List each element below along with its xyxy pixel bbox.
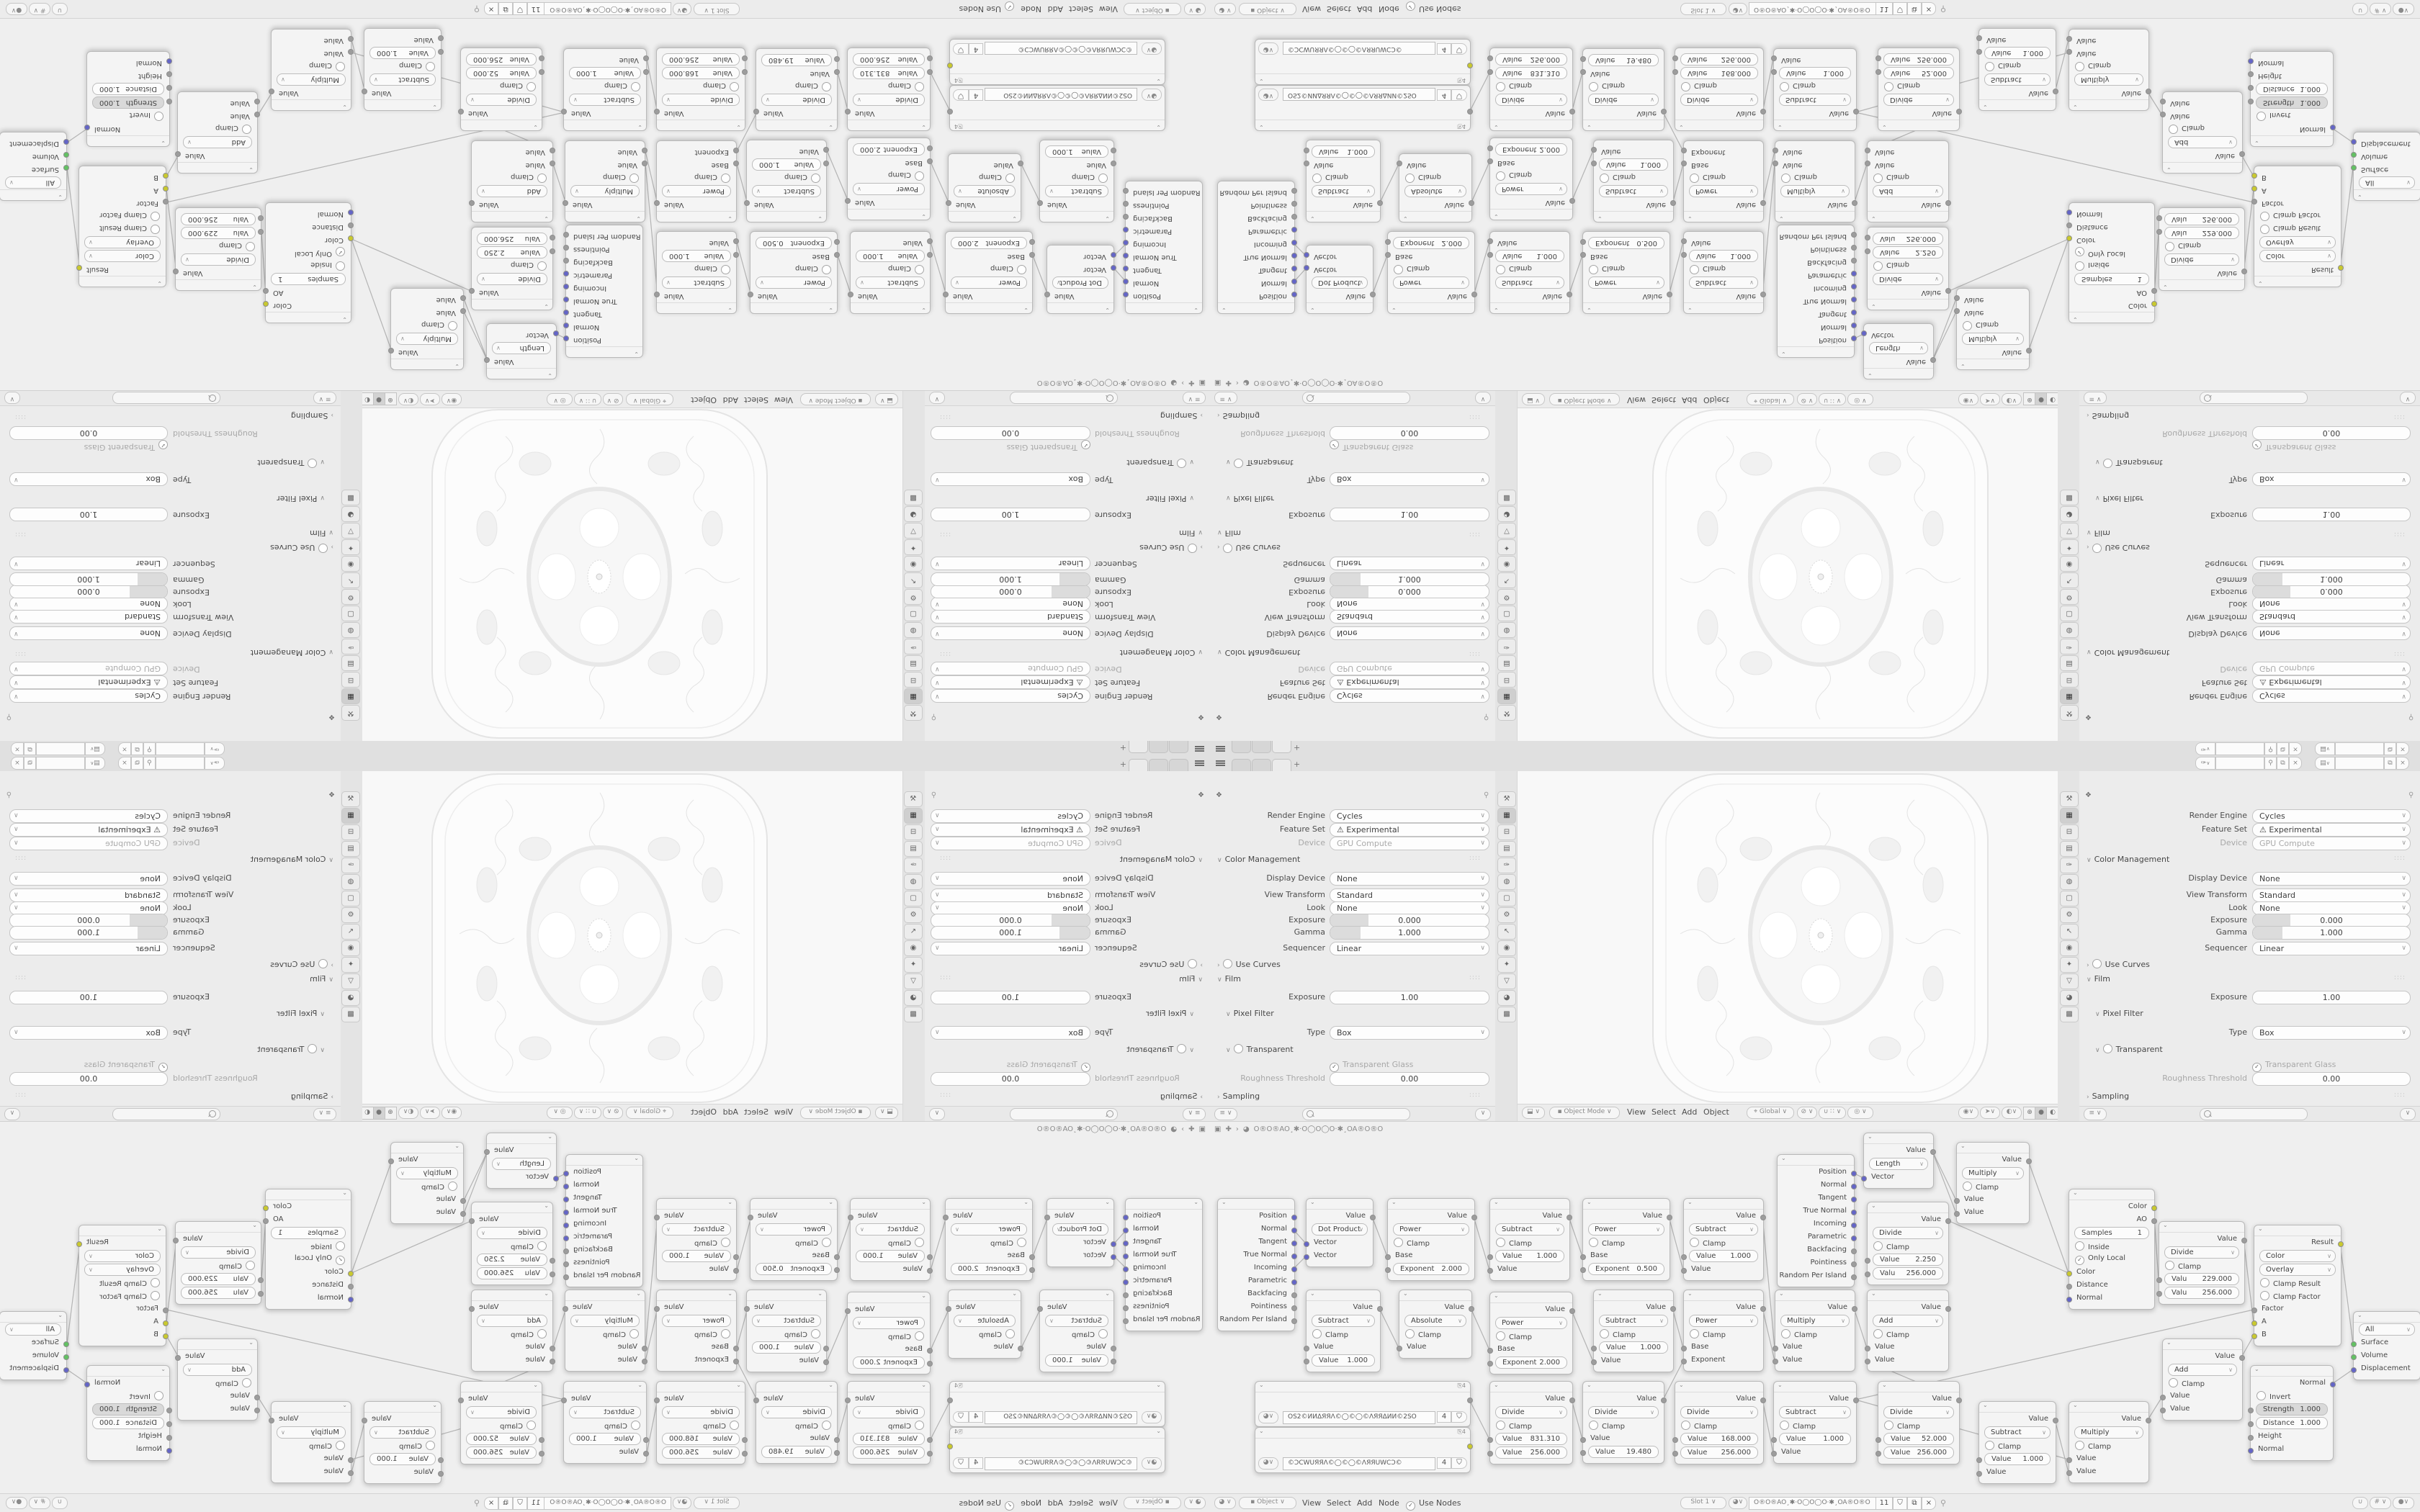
properties-tab-view-layer[interactable]: ▤ [2060, 655, 2079, 671]
socket-output[interactable] [1569, 109, 1575, 114]
node-checkbox[interactable]: Clamp [2165, 241, 2201, 251]
node-value-field[interactable]: Value19.480 [1588, 1446, 1659, 1458]
node-d10[interactable]: ⌄ValueDivide∨ClampValue2.250Valu256.000 [471, 1202, 553, 1285]
socket-input[interactable] [2248, 1448, 2254, 1454]
node-checkbox[interactable]: Clamp [990, 264, 1026, 274]
node-header[interactable]: ⌄ [1307, 211, 1380, 222]
node-checkbox[interactable]: Clamp [500, 81, 536, 91]
socket-input[interactable] [1385, 239, 1391, 245]
node-value-field[interactable]: Value168.000 [1680, 1433, 1758, 1445]
node-header[interactable]: ⌄ [2159, 279, 2244, 290]
node-s15[interactable]: ⌄ValueSubtract∨ClampValueValue1.000 [1306, 1290, 1381, 1372]
image-data-icon[interactable]: ▤∨ [2315, 742, 2335, 755]
shading-material-button[interactable]: ◐ [361, 392, 374, 405]
socket-input[interactable] [2066, 1271, 2072, 1277]
node-value-field[interactable]: Exponent0.500 [756, 237, 832, 249]
node-p17[interactable]: ⌄ValuePower∨ClampBaseExponent2.000 [1489, 1292, 1573, 1374]
node-header[interactable]: ⌄ [1594, 211, 1673, 222]
node-checkbox[interactable]: Clamp [703, 1421, 739, 1431]
menu-node[interactable]: Node [1021, 1498, 1041, 1508]
properties-tab-tool[interactable]: ⚒ [341, 791, 360, 807]
node-header[interactable]: ⌄ [364, 99, 441, 110]
node-header[interactable]: ⌄ [178, 1339, 257, 1350]
socket-output[interactable] [1569, 1308, 1575, 1314]
node-operation-dropdown[interactable]: All∨ [5, 176, 61, 189]
node-operation-dropdown[interactable]: Subtract∨ [856, 1223, 925, 1236]
node-value-field[interactable]: Valu256.000 [181, 1287, 256, 1299]
node-operation-dropdown[interactable]: Divide∨ [1588, 94, 1659, 106]
menu-view[interactable]: View [1627, 395, 1646, 405]
socket-output[interactable] [1853, 109, 1859, 114]
node-operation-dropdown[interactable]: Dot Product∨ [1052, 1223, 1108, 1236]
shield-icon[interactable]: ⛉ [1451, 43, 1467, 55]
node-value-field[interactable]: Distance1.000 [2256, 83, 2328, 95]
node-a22[interactable]: ⌄ValueAdd∨ClampValueValue [2162, 1338, 2243, 1421]
node-operation-dropdown[interactable]: Subtract∨ [1689, 1223, 1758, 1236]
socket-output[interactable] [563, 1248, 569, 1254]
properties-tab-tool[interactable]: ⚒ [2060, 705, 2079, 721]
node-header[interactable]: ⌄ [1864, 368, 1933, 379]
socket-output[interactable] [1123, 292, 1129, 297]
socket-input[interactable] [1487, 1254, 1493, 1260]
prop-field-type[interactable]: Box∨ [9, 1026, 168, 1040]
section-header-use-curves[interactable]: ›Use Curves [1217, 543, 1488, 553]
node-header[interactable]: ⌄ [1775, 1290, 1855, 1301]
socket-output[interactable] [269, 89, 274, 94]
node-g1[interactable]: ⌄PositionNormalTangentTrue NormalIncomin… [1125, 1198, 1203, 1331]
node-header[interactable]: ⌄ [657, 120, 745, 130]
checkbox-transparent-glass[interactable]: ✓Transparent Glass [1007, 1060, 1090, 1072]
socket-input[interactable] [1681, 148, 1687, 153]
properties-tab-particles[interactable]: ✦ [341, 957, 360, 973]
snap-dropdown[interactable]: ∪ ∷ ∨ [574, 393, 601, 405]
socket-input[interactable] [1304, 265, 1309, 271]
node-header[interactable]: ⌄ [2254, 276, 2341, 287]
copy-icon[interactable]: ⧉ [2384, 742, 2396, 755]
group-name-field[interactable]: OS2©ИИΔЯЯΛ©◯©◯©ΛЯЯΔИИ©2SO [985, 88, 1137, 101]
section-header-film[interactable]: ∨Film:::: [2087, 974, 2413, 984]
node-operation-dropdown[interactable]: Divide∨ [1588, 1406, 1659, 1418]
prop-field-type[interactable]: Box∨ [1330, 1026, 1489, 1040]
section-header-use-curves[interactable]: ›Use Curves [1217, 959, 1488, 969]
socket-input[interactable] [1385, 1254, 1391, 1260]
node-p17[interactable]: ⌄ValuePower∨ClampBaseExponent2.000 [1489, 138, 1573, 220]
node-header[interactable]: ⌄ [1684, 1199, 1763, 1210]
viewport-3d[interactable]: ⬓ ∨ ▪ Object Mode ∨ View Select Add Obje… [1517, 391, 2059, 741]
socket-input[interactable] [927, 1361, 933, 1367]
socket-input[interactable] [2248, 1435, 2254, 1441]
socket-input[interactable] [733, 161, 739, 166]
node-m20[interactable]: ⌄ValueMultiply∨ClampValueValue [565, 1290, 645, 1372]
node-header[interactable]: ⌄ [79, 276, 166, 287]
socket-output[interactable] [362, 1418, 367, 1423]
node-operation-dropdown[interactable]: Subtract∨ [1984, 73, 2051, 86]
socket-input[interactable] [1681, 1359, 1687, 1364]
socket-output[interactable] [1291, 1292, 1297, 1298]
socket-input[interactable] [823, 161, 829, 166]
shader-node-editor[interactable]: ⌄PositionNormalTangentTrue NormalIncomin… [0, 1121, 1210, 1512]
socket-input[interactable] [166, 71, 172, 77]
menu-add[interactable]: Add [1682, 395, 1697, 405]
prop-field-type[interactable]: Box∨ [1330, 472, 1489, 486]
shading-solid-button[interactable]: ● [372, 392, 385, 405]
properties-tab-texture[interactable]: ▩ [904, 490, 923, 505]
node-value-field[interactable]: Value1.000 [662, 1250, 731, 1262]
menu-object[interactable]: Object [1703, 1107, 1729, 1117]
node-value-field[interactable]: Samples1 [2074, 1227, 2149, 1239]
node-header[interactable]: ⌄ [564, 1382, 646, 1392]
socket-output[interactable] [563, 271, 569, 276]
node-d27[interactable]: ⌄ValueDivide∨ClampValue168.000Value256.0… [1675, 48, 1764, 131]
properties-tab-material[interactable]: ◕ [1497, 990, 1516, 1006]
users-count-badge[interactable]: 4 [969, 89, 983, 101]
socket-output[interactable] [1123, 1228, 1129, 1233]
id-name-field[interactable] [36, 757, 85, 770]
socket-output[interactable] [2338, 1241, 2344, 1247]
socket-output[interactable] [1467, 1398, 1473, 1403]
socket-input[interactable] [1976, 1457, 1982, 1463]
node-g1[interactable]: ⌄PositionNormalTangentTrue NormalIncomin… [1217, 1198, 1295, 1331]
properties-tab-physics[interactable]: ◉ [341, 940, 360, 956]
node-checkbox[interactable]: Clamp [511, 261, 547, 271]
prop-field-roughness-threshold[interactable]: 0.00 [2252, 1072, 2411, 1086]
socket-input[interactable] [166, 1421, 172, 1427]
socket-output[interactable] [263, 1218, 269, 1224]
node-operation-dropdown[interactable]: Subtract∨ [752, 185, 821, 197]
gizmos-dropdown[interactable]: ➤∨ [420, 393, 440, 405]
properties-tab-particles[interactable]: ✦ [904, 539, 923, 555]
node-operation-dropdown[interactable]: Multiply∨ [570, 1315, 640, 1327]
socket-output[interactable] [1851, 271, 1857, 276]
node-gr24[interactable]: ⌄⎘4◕∨©ƆCWUЯЯΛ©◯©◯©ΛЯЯUWCƆ©4⛉ [1255, 1427, 1471, 1473]
socket-input[interactable] [2251, 173, 2257, 179]
node-len8[interactable]: ⌄ValueLength∨Vector [486, 1133, 557, 1189]
proportional-edit-dropdown[interactable]: ◎ ∨ [547, 1107, 573, 1119]
socket-output[interactable] [1851, 232, 1857, 238]
node-checkbox[interactable]: Clamp [1496, 1421, 1532, 1431]
prop-slider-exposure[interactable]: 0.000 [9, 585, 168, 598]
properties-tab-texture[interactable]: ▩ [341, 490, 360, 505]
prop-dropdown-look[interactable]: None∨ [2252, 597, 2411, 611]
properties-tab-scene[interactable]: ✑ [2060, 858, 2079, 873]
snap-mode-dropdown[interactable]: # ∨ [29, 3, 50, 15]
properties-tab-object[interactable]: ▢ [2060, 891, 2079, 906]
node-checkbox[interactable]: Clamp Factor [2260, 211, 2321, 221]
node-header[interactable]: ⌄⎘4 [1255, 73, 1470, 84]
node-value-field[interactable]: Value1.000 [856, 1250, 925, 1262]
node-value-field[interactable]: Exponent2.000 [853, 1356, 925, 1369]
node-operation-dropdown[interactable]: Absolute∨ [954, 1315, 1016, 1327]
close-icon[interactable]: × [118, 742, 131, 755]
close-icon[interactable]: × [11, 742, 24, 755]
socket-input[interactable] [348, 235, 354, 241]
prop-field-type[interactable]: Box∨ [931, 472, 1090, 486]
properties-tab-data[interactable]: ▽ [1497, 523, 1516, 539]
socket-output[interactable] [654, 1215, 660, 1220]
workspace-tab[interactable] [1149, 759, 1168, 772]
node-checkbox[interactable]: Inside [310, 1241, 345, 1251]
prop-dropdown-render-engine[interactable]: Cycles∨ [2252, 809, 2411, 823]
node-checkbox[interactable]: Clamp [888, 1238, 924, 1248]
node-operation-dropdown[interactable]: Overlay∨ [2259, 1264, 2336, 1276]
prop-dropdown-feature-set[interactable]: ⚠ Experimental∨ [931, 823, 1090, 837]
group-name-field[interactable]: OS2©ИИΔЯЯΛ©◯©◯©ΛЯЯΔИИ©2SO [1283, 1411, 1435, 1424]
editor-type-dropdown[interactable]: ⬓ ∨ [1522, 1107, 1545, 1119]
properties-tab-particles[interactable]: ✦ [904, 957, 923, 973]
node-checkbox[interactable]: Clamp [1780, 81, 1816, 91]
node-value-field[interactable]: Value2.250 [477, 1254, 547, 1266]
properties-tab-modifiers[interactable]: ⚙ [1497, 589, 1516, 605]
node-header[interactable]: ⌄ [946, 1199, 1032, 1210]
properties-tab-world[interactable]: ◍ [2060, 874, 2079, 890]
prop-slider-exposure[interactable]: 0.000 [1330, 585, 1489, 598]
pin-icon[interactable]: ⚲ [1940, 4, 1946, 14]
socket-input[interactable] [1954, 1198, 1960, 1204]
socket-input[interactable] [550, 235, 555, 240]
node-operation-dropdown[interactable]: Divide∨ [662, 94, 740, 106]
node-operation-dropdown[interactable]: Subtract∨ [1312, 1315, 1375, 1327]
socket-input[interactable] [927, 158, 933, 164]
node-operation-dropdown[interactable]: Subtract∨ [1599, 185, 1668, 197]
node-value-field[interactable]: Valu229.000 [2164, 227, 2239, 239]
prop-dropdown-feature-set[interactable]: ⚠ Experimental∨ [931, 675, 1090, 689]
socket-input[interactable] [1875, 55, 1881, 61]
socket-input[interactable] [539, 1451, 544, 1457]
node-canvas[interactable]: ⌄PositionNormalTangentTrue NormalIncomin… [0, 1122, 1210, 1494]
node-header[interactable]: ⌄ [2069, 99, 2148, 110]
socket-input[interactable] [2351, 165, 2357, 171]
node-a22[interactable]: ⌄ValueAdd∨ClampValueValue [177, 91, 258, 174]
node-checkbox[interactable]: ✓Only Local [295, 1254, 345, 1265]
node-value-field[interactable]: Value256.000 [466, 1446, 537, 1459]
prop-dropdown-device[interactable]: GPU Compute∨ [9, 662, 168, 675]
properties-tab-modifiers[interactable]: ⚙ [341, 589, 360, 605]
properties-tab-particles[interactable]: ✦ [2060, 539, 2079, 555]
workspace-tab[interactable] [1252, 740, 1271, 753]
node-s15[interactable]: ⌄ValueSubtract∨ClampValueValue1.000 [1039, 1290, 1114, 1372]
node-ao11[interactable]: ⌄ColorAOSamples1Inside✓Only LocalColorDi… [265, 202, 351, 323]
socket-input[interactable] [834, 1437, 840, 1443]
node-operation-dropdown[interactable]: Divide∨ [1883, 94, 1954, 106]
fake-user-shield-icon[interactable]: ⛉ [1893, 2, 1907, 15]
socket-output[interactable] [1123, 214, 1129, 220]
section-header-film[interactable]: ∨Film:::: [932, 528, 1203, 538]
node-checkbox[interactable]: Clamp [1496, 264, 1532, 274]
properties-tab-view-layer[interactable]: ▤ [904, 841, 923, 857]
socket-output[interactable] [1760, 109, 1766, 114]
group-datablock-row[interactable]: ◕∨©ƆCWUЯЯΛ©◯©◯©ΛЯЯUWCƆ©4⛉ [953, 43, 1162, 55]
properties-tab-world[interactable]: ◍ [1497, 874, 1516, 890]
node-checkbox[interactable]: Clamp [795, 1238, 831, 1248]
hamburger-menu-icon[interactable] [1216, 760, 1225, 768]
node-value-field[interactable]: Distance1.000 [92, 1417, 164, 1429]
node-checkbox[interactable]: Clamp [1589, 81, 1625, 91]
socket-input[interactable] [254, 112, 260, 117]
socket-input[interactable] [643, 55, 649, 61]
socket-input[interactable] [1771, 1451, 1777, 1457]
users-count-badge[interactable]: 4 [969, 43, 983, 55]
socket-output[interactable] [2026, 1158, 2032, 1164]
socket-output[interactable] [1852, 1306, 1857, 1312]
node-checkbox[interactable]: Clamp [399, 1441, 435, 1451]
properties-tab-texture[interactable]: ▩ [341, 1007, 360, 1022]
node-d27[interactable]: ⌄ValueDivide∨ClampValue168.000Value256.0… [656, 1381, 745, 1464]
node-header[interactable]: ⌄ [391, 359, 463, 369]
shield-icon[interactable]: ⛉ [1451, 1411, 1467, 1423]
node-header[interactable]: ⌄ [2159, 1222, 2244, 1233]
socket-output[interactable] [1370, 1215, 1376, 1220]
node-header[interactable]: ⌄ [2163, 1339, 2242, 1350]
socket-output[interactable] [563, 200, 568, 206]
properties-tab-data[interactable]: ▽ [341, 973, 360, 989]
socket-input[interactable] [2251, 1308, 2257, 1313]
browse-icon[interactable]: ◕∨ [1142, 89, 1162, 101]
socket-output[interactable] [563, 1184, 569, 1189]
section-header-film[interactable]: ∨Film:::: [7, 528, 333, 538]
node-operation-dropdown[interactable]: Divide∨ [181, 253, 256, 266]
node-header[interactable]: ⌄⎘4 [950, 73, 1165, 84]
node-checkbox[interactable]: Clamp Result [2260, 224, 2321, 234]
pin-icon[interactable]: ⚲ [1940, 1498, 1946, 1508]
node-value-field[interactable]: Value256.000 [1883, 53, 1954, 66]
socket-input[interactable] [2156, 1291, 2162, 1297]
socket-output[interactable] [2151, 1218, 2157, 1224]
properties-tab-constraints[interactable]: ↖ [2060, 572, 2079, 588]
node-d29[interactable]: ⌄ValueDivide∨ClampValue52.000Value256.00… [460, 1381, 542, 1464]
section-header-color-management[interactable]: ∨Color Management:::: [2087, 855, 2413, 864]
node-s28[interactable]: ⌄ValueSubtract∨ClampValue1.000Value [1773, 1381, 1857, 1464]
node-header[interactable]: ⌄ [657, 302, 736, 313]
socket-output[interactable] [1569, 1398, 1575, 1403]
image-id-selector[interactable]: ▤∨ ⧉ × [11, 757, 105, 769]
socket-output[interactable] [654, 1398, 660, 1403]
mode-dropdown[interactable]: ▪ Object Mode ∨ [1549, 1107, 1620, 1119]
node-value-field[interactable]: Value168.000 [1680, 67, 1758, 79]
socket-input[interactable] [1580, 252, 1586, 258]
prop-dropdown-view-transform[interactable]: Standard∨ [2252, 610, 2411, 624]
checkbox-transparent-glass[interactable]: ✓Transparent Glass [1330, 1060, 1413, 1072]
node-value-field[interactable]: Value831.310 [1495, 67, 1567, 79]
node-gr23[interactable]: ⌄⎘4◕∨OS2©ИИΔЯЯΛ©◯©◯©ΛЯЯΔИИ©2SO4⛉ [949, 1381, 1165, 1427]
socket-input[interactable] [2248, 58, 2254, 64]
socket-input[interactable] [1591, 1346, 1597, 1351]
close-icon[interactable]: × [118, 757, 131, 770]
menu-add[interactable]: Add [723, 395, 738, 405]
properties-tab-modifiers[interactable]: ⚙ [2060, 907, 2079, 923]
socket-output[interactable] [563, 1261, 569, 1267]
node-operation-dropdown[interactable]: Subtract∨ [1495, 276, 1564, 289]
socket-output[interactable] [1945, 200, 1951, 206]
node-operation-dropdown[interactable]: Subtract∨ [1045, 1315, 1108, 1327]
socket-input[interactable] [2351, 1341, 2357, 1347]
node-operation-dropdown[interactable]: Overlay∨ [84, 236, 161, 248]
node-d26[interactable]: ⌄ValueDivide∨ClampValueValue19.480 [756, 48, 838, 131]
collapse-button[interactable]: ∨ [2400, 1108, 2416, 1120]
node-operation-dropdown[interactable]: Subtract∨ [1312, 185, 1375, 197]
node-header[interactable]: ⌄ [1778, 346, 1854, 357]
socket-output[interactable] [845, 1398, 851, 1403]
material-id-selector[interactable]: ✑∨ ⚲ ⧉ × [2195, 757, 2302, 769]
node-checkbox[interactable]: Clamp [500, 1421, 536, 1431]
socket-input[interactable] [1580, 69, 1586, 75]
properties-tab-render[interactable]: ▦ [904, 808, 923, 824]
properties-tab-output[interactable]: ⊟ [341, 824, 360, 840]
close-icon[interactable]: × [2289, 742, 2302, 755]
node-out14[interactable]: ⌄All∨SurfaceVolumeDisplacement [0, 1311, 67, 1380]
pin-icon[interactable]: ⚲ [6, 713, 12, 721]
socket-input[interactable] [1397, 1346, 1402, 1351]
workspace-tab[interactable] [1149, 740, 1168, 753]
node-a21[interactable]: ⌄ValueAdd∨ClampValueValue [471, 140, 553, 222]
socket-output[interactable] [76, 265, 82, 271]
socket-output[interactable] [1123, 227, 1129, 233]
node-header[interactable]: ⌄ [565, 1290, 645, 1301]
node-checkbox[interactable]: Clamp [399, 61, 435, 71]
node-checkbox[interactable]: Clamp [1873, 261, 1909, 271]
node-mix13[interactable]: ⌄ResultColor∨Overlay∨Clamp ResultClamp F… [79, 1225, 166, 1346]
socket-output[interactable] [1123, 1266, 1129, 1272]
node-d29[interactable]: ⌄ValueDivide∨ClampValue52.000Value256.00… [1878, 48, 1960, 131]
search-input[interactable] [1010, 392, 1118, 404]
section-header-transparent[interactable]: ∨Transparent [1226, 458, 1497, 468]
properties-tab-modifiers[interactable]: ⚙ [904, 589, 923, 605]
node-operation-dropdown[interactable]: Multiply∨ [1962, 333, 2024, 345]
node-checkbox[interactable]: Clamp [604, 1421, 640, 1431]
socket-input[interactable] [1672, 1451, 1678, 1457]
node-header[interactable]: ⌄⎘4 [1255, 1428, 1470, 1439]
node-value-field[interactable]: Samples1 [2074, 273, 2149, 285]
unlink-icon[interactable]: × [1922, 1497, 1936, 1510]
node-operation-dropdown[interactable]: Add∨ [1873, 185, 1943, 197]
socket-input[interactable] [733, 252, 739, 258]
menu-view[interactable]: View [1302, 1498, 1321, 1508]
users-count-badge[interactable]: 11 [527, 2, 544, 15]
socket-output[interactable] [2241, 1238, 2247, 1243]
node-operation-dropdown[interactable]: Subtract∨ [1495, 1223, 1564, 1236]
node-header[interactable]: ⌄ [1583, 120, 1664, 130]
filter-button[interactable]: ≡ ∨ [1183, 392, 1206, 404]
socket-input[interactable] [1773, 1346, 1778, 1351]
node-operation-dropdown[interactable]: Power∨ [1588, 276, 1664, 289]
node-p17[interactable]: ⌄ValuePower∨ClampBaseExponent2.000 [847, 138, 931, 220]
node-checkbox[interactable]: Clamp [694, 173, 730, 183]
node-value-field[interactable]: Value1.000 [1689, 1250, 1758, 1262]
node-m31[interactable]: ⌄ValueMultiply∨ClampValueValue [271, 29, 351, 111]
socket-output[interactable] [1851, 336, 1857, 341]
node-checkbox[interactable]: Clamp [1681, 81, 1717, 91]
node-ao11[interactable]: ⌄ColorAOSamples1Inside✓Only LocalColorDi… [265, 1189, 351, 1310]
socket-input[interactable] [348, 1284, 354, 1290]
node-header[interactable]: ⌄ [1218, 1199, 1294, 1210]
properties-tab-output[interactable]: ⊟ [904, 824, 923, 840]
prop-field-roughness-threshold[interactable]: 0.00 [9, 1072, 168, 1086]
socket-output[interactable] [1851, 1171, 1857, 1176]
socket-output[interactable] [84, 125, 90, 130]
node-operation-dropdown[interactable]: Subtract∨ [369, 1426, 436, 1439]
shading-solid-button[interactable]: ● [372, 1107, 385, 1120]
shader-node-editor[interactable]: ⌄PositionNormalTangentTrue NormalIncomin… [1210, 0, 2420, 391]
socket-input[interactable] [254, 99, 260, 104]
socket-output[interactable] [1567, 292, 1572, 297]
properties-tab-scene[interactable]: ✑ [1497, 639, 1516, 654]
socket-input[interactable] [642, 1359, 647, 1364]
node-value-field[interactable]: Value19.480 [1588, 54, 1659, 66]
node-checkbox[interactable]: Clamp Result [2260, 1278, 2321, 1288]
editor-type-dropdown[interactable]: ⬓ ∨ [1522, 393, 1545, 405]
node-checkbox[interactable]: Clamp [2075, 61, 2111, 71]
properties-tab-texture[interactable]: ▩ [904, 1007, 923, 1022]
group-datablock-row[interactable]: ◕∨OS2©ИИΔЯЯΛ©◯©◯©ΛЯЯΔИИ©2SO4⛉ [953, 1411, 1162, 1423]
